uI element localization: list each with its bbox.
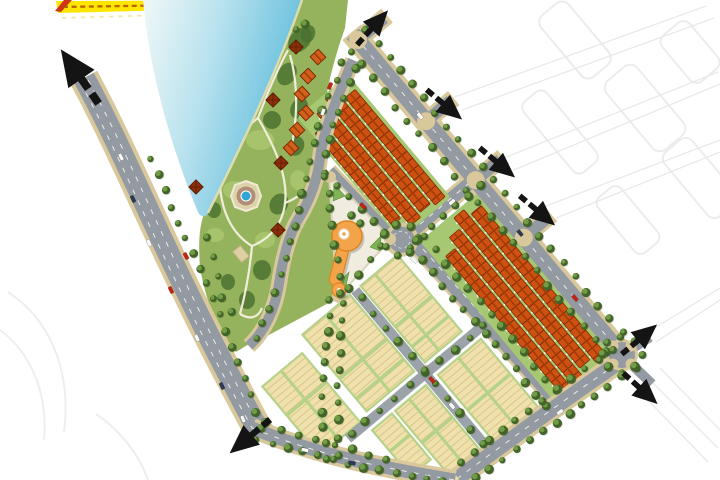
tree-highlight [432, 110, 436, 114]
tree-highlight [639, 351, 644, 356]
tree-highlight [337, 273, 342, 278]
tree-highlight [328, 221, 334, 227]
tree-highlight [420, 94, 425, 99]
tree-highlight [319, 423, 325, 429]
tree-highlight [320, 375, 325, 380]
tree-highlight [218, 294, 223, 299]
tree-highlight [365, 452, 370, 457]
tree-highlight [346, 194, 350, 198]
tree-highlight [338, 59, 343, 64]
tree-highlight [228, 344, 233, 349]
tree-highlight [465, 192, 471, 198]
tree-highlight [451, 346, 457, 352]
banner-dash-faint [109, 16, 113, 18]
tree-highlight [339, 318, 343, 322]
tree-highlight [326, 136, 332, 142]
tree-highlight [334, 435, 339, 440]
tree-highlight [596, 357, 601, 362]
tree-highlight [440, 213, 445, 218]
tree-highlight [392, 105, 396, 109]
tree-highlight [228, 308, 233, 313]
tree-highlight [412, 236, 418, 242]
tree-highlight [450, 296, 454, 300]
tree-highlight [284, 255, 288, 259]
banner-dash [89, 5, 94, 7]
tree-highlight [259, 320, 264, 325]
banner-dash-faint [137, 15, 141, 17]
tree-highlight [467, 335, 471, 339]
tree-highlight [234, 359, 239, 364]
tree-highlight [407, 381, 412, 386]
tree-highlight [326, 205, 331, 210]
tree-highlight [477, 181, 483, 187]
tree-highlight [348, 445, 354, 451]
banner-dash-faint [81, 16, 85, 18]
tree-highlight [433, 246, 437, 250]
tree-highlight [334, 183, 338, 187]
tree-highlight [441, 260, 447, 266]
tree-highlight [523, 219, 529, 225]
tree-highlight [336, 367, 341, 372]
tree-highlight [352, 64, 358, 70]
tree-highlight [497, 322, 503, 328]
tree-highlight [287, 239, 291, 243]
tree-highlight [378, 243, 382, 247]
tree-highlight [336, 332, 342, 338]
tree-highlight [330, 122, 334, 126]
tree-highlight [254, 336, 258, 340]
tree-highlight [175, 220, 179, 224]
tree-highlight [325, 93, 329, 97]
tree-highlight [456, 409, 462, 415]
tree-highlight [455, 136, 459, 140]
tree-highlight [468, 149, 473, 154]
tree-highlight [293, 27, 297, 31]
banner-dash-faint [128, 15, 132, 17]
tree-highlight [542, 376, 547, 381]
tree-highlight [604, 384, 609, 389]
tree-highlight [197, 265, 202, 270]
tree-highlight [341, 301, 345, 305]
tree-highlight [381, 88, 386, 93]
tree-highlight [520, 348, 526, 354]
tree-highlight [278, 426, 283, 431]
tree-highlight [604, 339, 609, 344]
tree-highlight [480, 322, 485, 327]
tree-highlight [337, 290, 342, 295]
tree-highlight [295, 206, 300, 211]
tree-highlight [211, 254, 215, 258]
tree-highlight [561, 259, 565, 263]
tree-highlight [416, 131, 420, 135]
tree-highlight [617, 334, 622, 339]
tree-highlight [478, 298, 483, 303]
tree-highlight [407, 223, 413, 229]
tree-highlight [475, 200, 479, 204]
tree-highlight [348, 212, 353, 217]
tree-highlight [503, 353, 508, 358]
tree-highlight [521, 379, 527, 385]
banner-dash-faint [71, 17, 75, 19]
tree-highlight [148, 156, 152, 160]
tree-highlight [295, 432, 300, 437]
tree-highlight [582, 288, 588, 294]
tree-cluster [221, 274, 235, 290]
tree-highlight [383, 244, 387, 248]
site-plan-map [0, 0, 720, 480]
tree-highlight [370, 218, 375, 223]
tree-highlight [460, 306, 464, 310]
tree-highlight [369, 74, 374, 79]
tree-highlight [480, 440, 485, 445]
banner-dash [80, 5, 85, 7]
tree-highlight [593, 337, 597, 341]
tree-highlight [436, 357, 441, 362]
tree-highlight [582, 366, 586, 370]
tree-highlight [566, 410, 572, 416]
tree-highlight [168, 205, 172, 209]
tree-highlight [190, 250, 195, 255]
tree-highlight [335, 415, 341, 421]
tree-highlight [527, 437, 532, 442]
tree-highlight [419, 256, 425, 262]
tree-highlight [321, 173, 325, 177]
tree-highlight [298, 190, 304, 196]
tree-highlight [162, 186, 167, 191]
tree-highlight [443, 124, 447, 128]
tree-highlight [359, 464, 365, 470]
tree-highlight [383, 326, 387, 330]
tree-highlight [335, 109, 339, 113]
tree-highlight [429, 143, 435, 149]
tree-highlight [392, 221, 398, 227]
tree-highlight [445, 396, 449, 400]
tree-highlight [368, 256, 372, 260]
tree-highlight [509, 335, 515, 341]
tree-highlight [490, 176, 494, 180]
tree-highlight [483, 330, 489, 336]
tree-highlight [270, 441, 274, 445]
tree-highlight [397, 66, 403, 72]
tree-highlight [567, 375, 573, 381]
tree-highlight [514, 204, 518, 208]
tree-highlight [347, 79, 352, 84]
tree-highlight [362, 26, 367, 31]
tree-highlight [620, 329, 624, 333]
tree-highlight [216, 274, 220, 278]
tree-highlight [323, 456, 328, 461]
tree-highlight [361, 417, 367, 423]
tree-highlight [532, 391, 538, 397]
tree-highlight [338, 350, 343, 355]
tree-highlight [327, 313, 331, 317]
tree-highlight [487, 213, 493, 219]
tree-highlight [335, 400, 339, 404]
tree-highlight [203, 234, 208, 239]
tree-highlight [322, 439, 327, 444]
banner-dash [63, 6, 68, 8]
tree-highlight [383, 456, 388, 461]
tree-highlight [322, 150, 327, 155]
tree-highlight [210, 296, 214, 300]
tree-highlight [334, 77, 338, 81]
tree-highlight [388, 54, 392, 58]
tree-highlight [543, 282, 549, 288]
tree-highlight [429, 268, 434, 273]
tree-highlight [345, 285, 351, 291]
banner-dash-faint [62, 17, 66, 19]
tree-highlight [334, 383, 338, 387]
tree-highlight [471, 449, 476, 454]
tree-highlight [391, 396, 395, 400]
banner-dash [97, 5, 102, 7]
tree-highlight [326, 190, 331, 195]
tree-highlight [242, 375, 246, 379]
tree-highlight [567, 308, 572, 313]
tree-highlight [510, 240, 515, 245]
tree-highlight [348, 49, 352, 53]
tree-highlight [499, 426, 505, 432]
tree-highlight [594, 302, 599, 307]
tree-highlight [534, 267, 538, 271]
banner-dash [132, 5, 137, 7]
tree-highlight [499, 227, 504, 232]
tree-highlight [394, 337, 400, 343]
tree-highlight [380, 230, 386, 236]
banner-dash-faint [118, 15, 122, 17]
fountain-plaza [231, 181, 261, 211]
banner-dash [115, 5, 120, 7]
tree-highlight [394, 252, 399, 257]
tree-highlight [406, 248, 411, 253]
tree-highlight [252, 409, 258, 415]
tree-highlight [279, 272, 283, 276]
tree-highlight [535, 233, 540, 238]
tree-highlight [514, 446, 519, 451]
tree-highlight [248, 392, 252, 396]
tree-highlight [531, 363, 536, 368]
tree-highlight [319, 394, 323, 398]
tree-highlight [464, 285, 469, 290]
tree-highlight [203, 280, 207, 284]
tree-highlight [292, 223, 297, 228]
tree-highlight [335, 452, 340, 457]
tree-highlight [304, 176, 308, 180]
tree-highlight [266, 306, 271, 311]
tree-highlight [357, 220, 362, 225]
banner-dash-faint [90, 16, 94, 18]
tree-highlight [573, 273, 577, 277]
tree-highlight [502, 190, 506, 194]
tree-highlight [325, 328, 331, 334]
tree-highlight [409, 473, 414, 478]
tree-highlight [409, 80, 414, 85]
tree-highlight [451, 173, 456, 178]
tree-highlight [340, 95, 345, 100]
tree-cluster [263, 111, 281, 129]
tree-highlight [492, 341, 497, 346]
tree-highlight [553, 419, 559, 425]
tree-highlight [440, 157, 445, 162]
tree-highlight [539, 398, 544, 403]
tree-highlight [513, 365, 517, 369]
tree-highlight [370, 311, 374, 315]
tree-highlight [553, 385, 559, 391]
tree-highlight [525, 408, 530, 413]
tree-highlight [424, 476, 428, 480]
fountain-icon [241, 191, 251, 201]
tree-highlight [349, 430, 354, 435]
tree-highlight [330, 241, 336, 247]
tree-cluster [253, 260, 271, 280]
tree-highlight [599, 350, 605, 356]
tree-highlight [581, 323, 585, 327]
tree-highlight [376, 41, 380, 45]
tree-highlight [409, 352, 414, 357]
tree-highlight [307, 159, 311, 163]
tree-highlight [318, 408, 324, 414]
tree-highlight [609, 346, 614, 351]
tree-highlight [472, 318, 478, 324]
tree-highlight [540, 427, 545, 432]
tree-highlight [463, 187, 467, 191]
tree-highlight [489, 311, 493, 315]
tree-highlight [311, 140, 316, 145]
banner-dash-faint [100, 16, 104, 18]
site-plan-page [0, 0, 720, 480]
tree-highlight [332, 442, 336, 446]
tree-highlight [326, 297, 331, 302]
banner-dash [123, 5, 128, 7]
tree-highlight [377, 408, 381, 412]
tree-highlight [217, 311, 221, 315]
tree-highlight [421, 367, 426, 372]
tree-highlight [404, 118, 408, 122]
tree-highlight [355, 271, 361, 277]
tree-highlight [314, 123, 319, 128]
tree-highlight [428, 223, 432, 227]
tree-highlight [182, 235, 186, 239]
tree-highlight [284, 444, 290, 450]
tree-highlight [375, 466, 381, 472]
tree-highlight [439, 283, 444, 288]
tree-highlight [485, 465, 491, 471]
tree-highlight [222, 328, 227, 333]
banner-dash [72, 6, 77, 8]
tree-highlight [472, 473, 478, 479]
tree-highlight [322, 343, 327, 348]
tree-highlight [606, 315, 611, 320]
tree-highlight [547, 245, 552, 250]
tree-highlight [604, 363, 610, 369]
tree-highlight [301, 20, 306, 25]
tree-highlight [453, 273, 459, 279]
tree-highlight [359, 294, 364, 299]
tree-highlight [480, 163, 485, 168]
tree-highlight [522, 253, 526, 257]
tree-highlight [458, 459, 463, 464]
tree-highlight [271, 289, 276, 294]
tree-highlight [512, 417, 516, 421]
tree-highlight [393, 470, 398, 475]
tree-highlight [314, 452, 319, 457]
tree-highlight [155, 171, 160, 176]
banner-dash [106, 5, 111, 7]
tree-highlight [499, 457, 503, 461]
tree-highlight [591, 393, 596, 398]
tree-highlight [313, 436, 318, 441]
tree-highlight [321, 359, 326, 364]
tree-highlight [335, 257, 339, 261]
tree-highlight [467, 426, 472, 431]
tree-highlight [555, 296, 560, 301]
tree-highlight [578, 402, 582, 406]
tree-highlight [631, 362, 637, 368]
